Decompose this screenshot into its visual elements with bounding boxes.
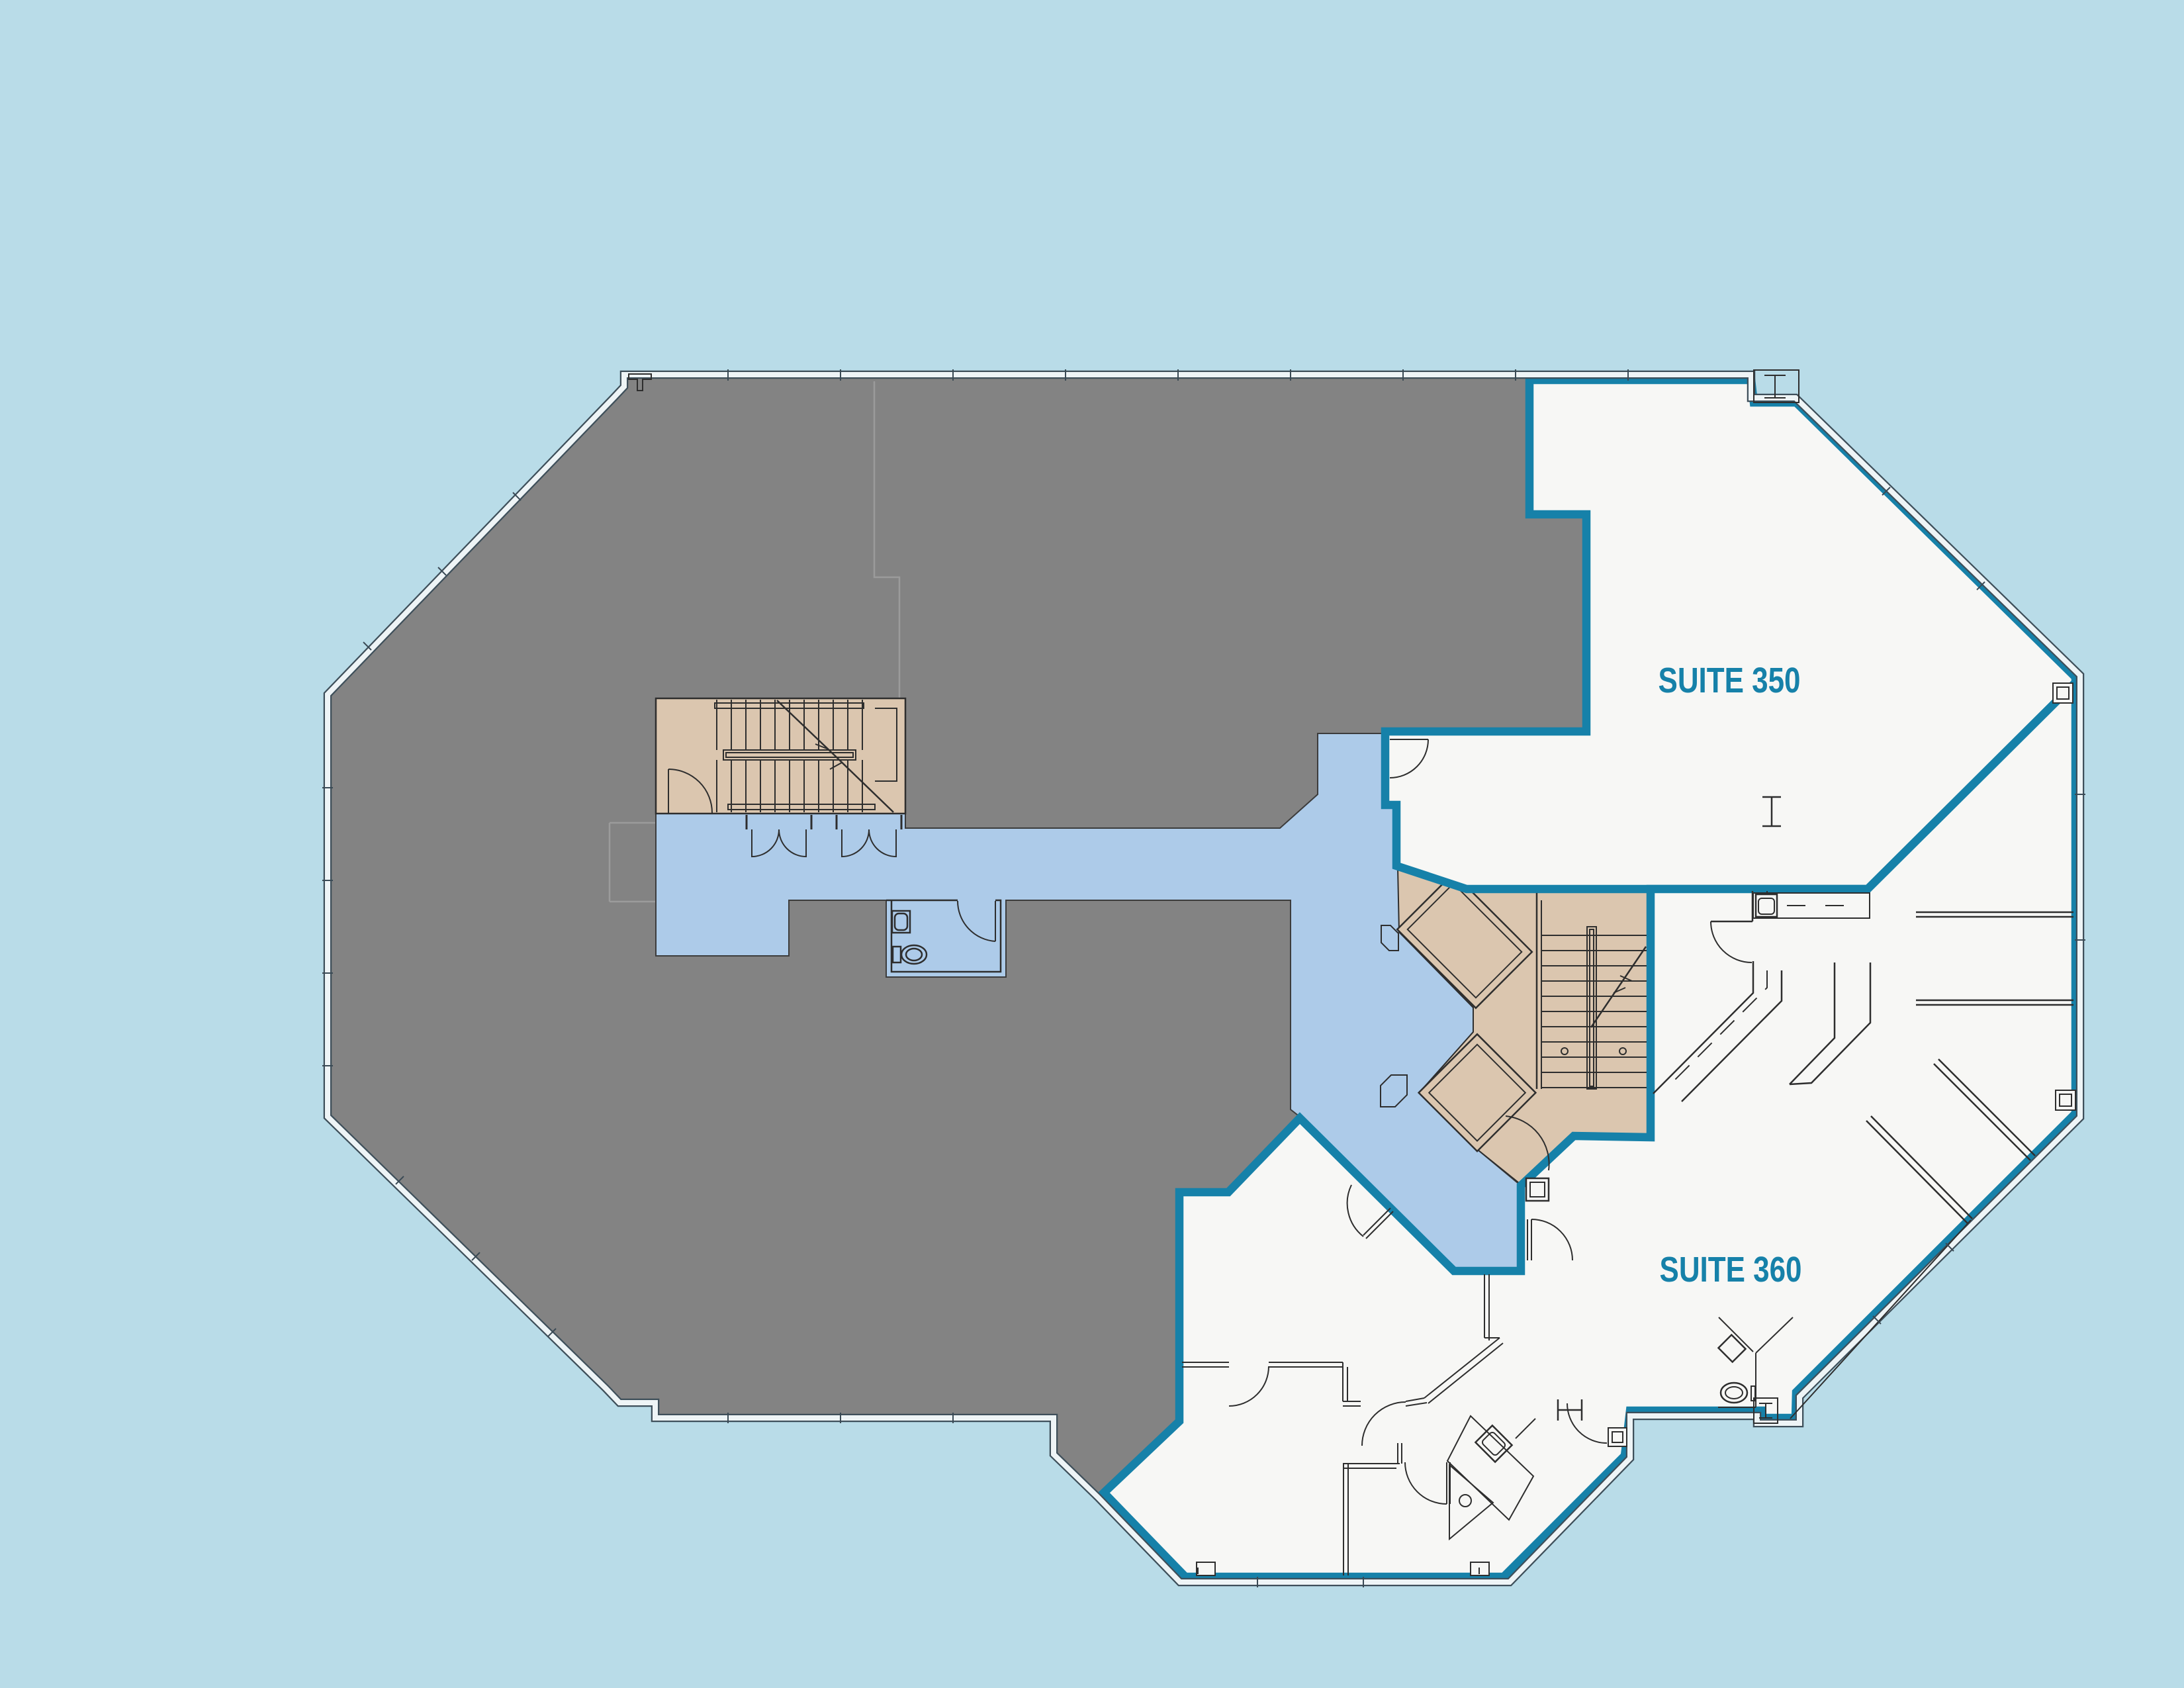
svg-text:SUITE 350: SUITE 350 <box>1659 661 1801 700</box>
svg-text:SUITE 360: SUITE 360 <box>1660 1250 1802 1289</box>
